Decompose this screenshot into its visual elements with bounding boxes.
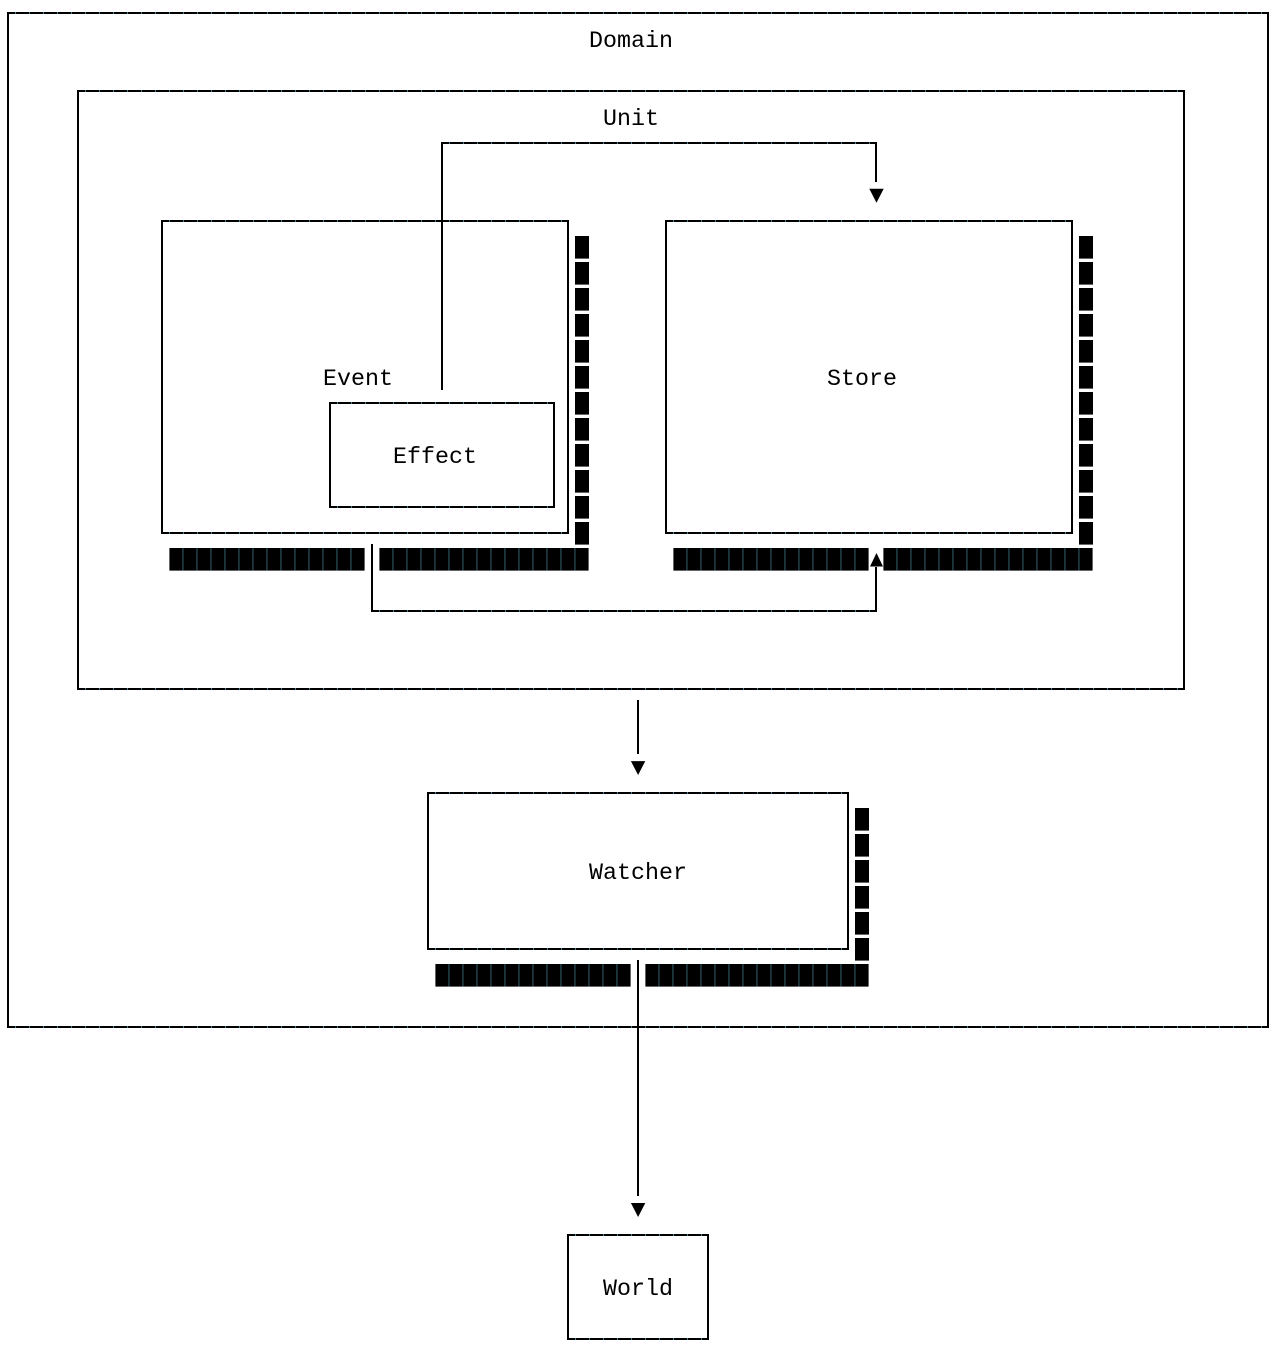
svg-text:Event: Event	[323, 367, 393, 393]
svg-text:Effect: Effect	[393, 445, 477, 471]
svg-text:Unit: Unit	[603, 107, 659, 133]
svg-text:Watcher: Watcher	[589, 861, 687, 887]
svg-text:Domain: Domain	[589, 29, 673, 55]
svg-text:Store: Store	[827, 367, 897, 393]
svg-text:World: World	[603, 1277, 673, 1303]
